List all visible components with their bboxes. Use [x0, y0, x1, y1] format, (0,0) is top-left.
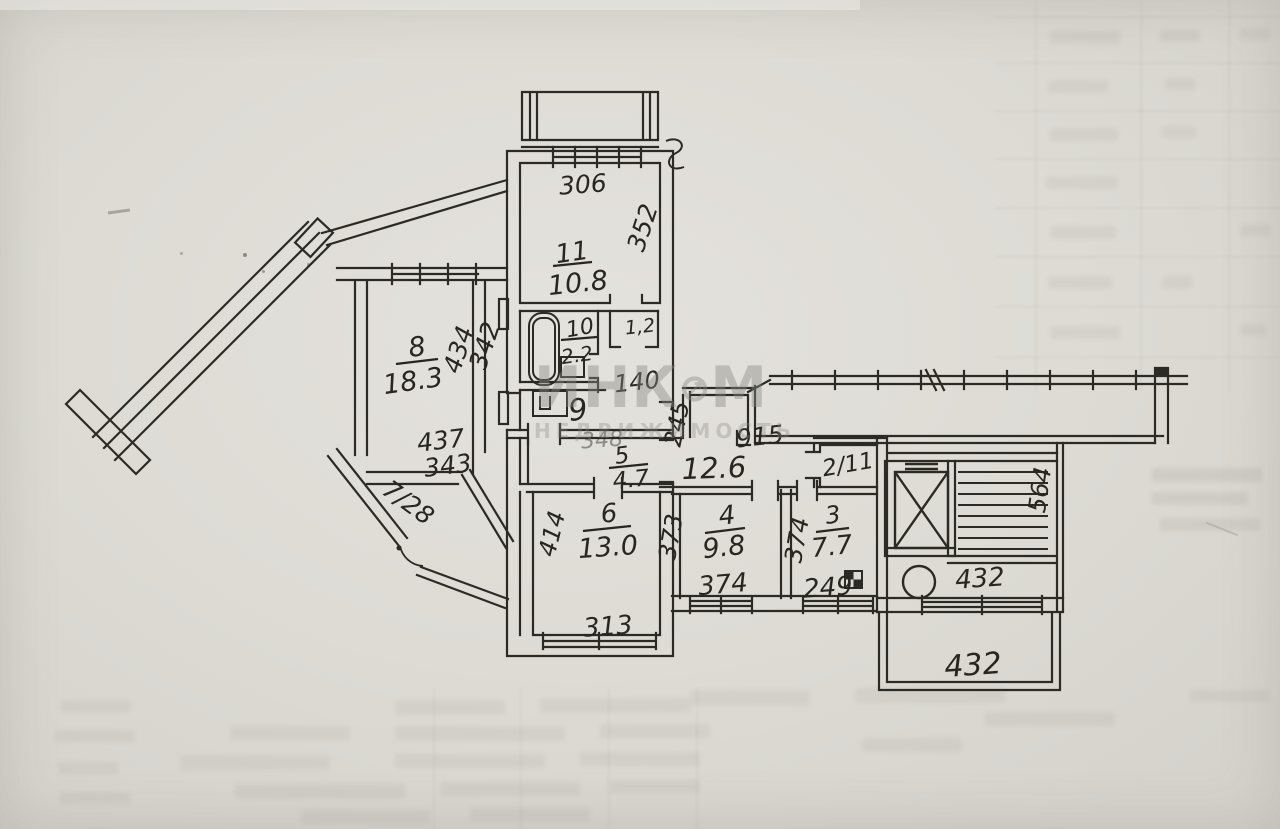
dim-room6-side: 414	[533, 508, 571, 559]
dim-room8-bottom-b: 343	[422, 448, 473, 483]
dim-balcony-top: 306	[558, 168, 608, 200]
dim-balcony-bottom: 432	[943, 646, 1003, 685]
dim-room4-side: 373	[653, 512, 689, 562]
room10-area: 2.2	[559, 341, 594, 369]
dim-room3-side: 374	[779, 515, 815, 565]
room8-number: 8	[406, 331, 427, 364]
garbage-chute-icon	[903, 566, 935, 598]
balcony7-label: 7/28	[377, 474, 439, 530]
dim-room3-bottom: 249	[802, 571, 854, 604]
scanned-floor-plan-page: 306 352 11 10.8 10 2.2 1,2 140 9 245 915…	[0, 0, 1280, 829]
room4-area: 9.8	[701, 530, 747, 565]
dim-corridor-side: 245	[659, 398, 696, 449]
room8-area: 18.3	[381, 362, 445, 401]
room6-area: 13.0	[577, 530, 639, 565]
room6-number: 6	[599, 498, 618, 529]
room9-number: 9	[567, 392, 590, 429]
dim-room8-side-b: 342	[463, 318, 505, 372]
room4-number: 4	[717, 500, 737, 532]
room3-area: 7.7	[810, 530, 855, 564]
room2-label: 2/11	[820, 448, 875, 483]
room5-area: 4.7	[611, 465, 650, 495]
wall-break-symbol	[666, 139, 684, 168]
closet-icon	[533, 391, 567, 416]
floor-plan-drawing: 306 352 11 10.8 10 2.2 1,2 140 9 245 915…	[0, 0, 1280, 829]
corridor-area: 12.6	[681, 450, 747, 486]
dim-room6-bottom: 313	[582, 610, 634, 643]
room3-number: 3	[823, 500, 842, 530]
room11-area: 10.8	[546, 265, 609, 302]
elevator-icon	[895, 464, 948, 548]
dim-hall: 140	[613, 366, 661, 399]
wc-area: 1,2	[624, 314, 656, 339]
room10-number: 10	[564, 314, 596, 343]
dim-room4-bottom: 374	[697, 568, 749, 602]
room11-number: 11	[554, 236, 591, 270]
room5-number: 5	[613, 442, 631, 470]
dim-stairs-side: 564	[1023, 465, 1057, 514]
gallery-end-cap	[1155, 368, 1168, 375]
dim-gallery: 915	[735, 420, 785, 454]
dim-room11-side: 352	[621, 200, 663, 254]
dim-lobby: 432	[954, 562, 1006, 595]
door-arc	[397, 546, 424, 567]
